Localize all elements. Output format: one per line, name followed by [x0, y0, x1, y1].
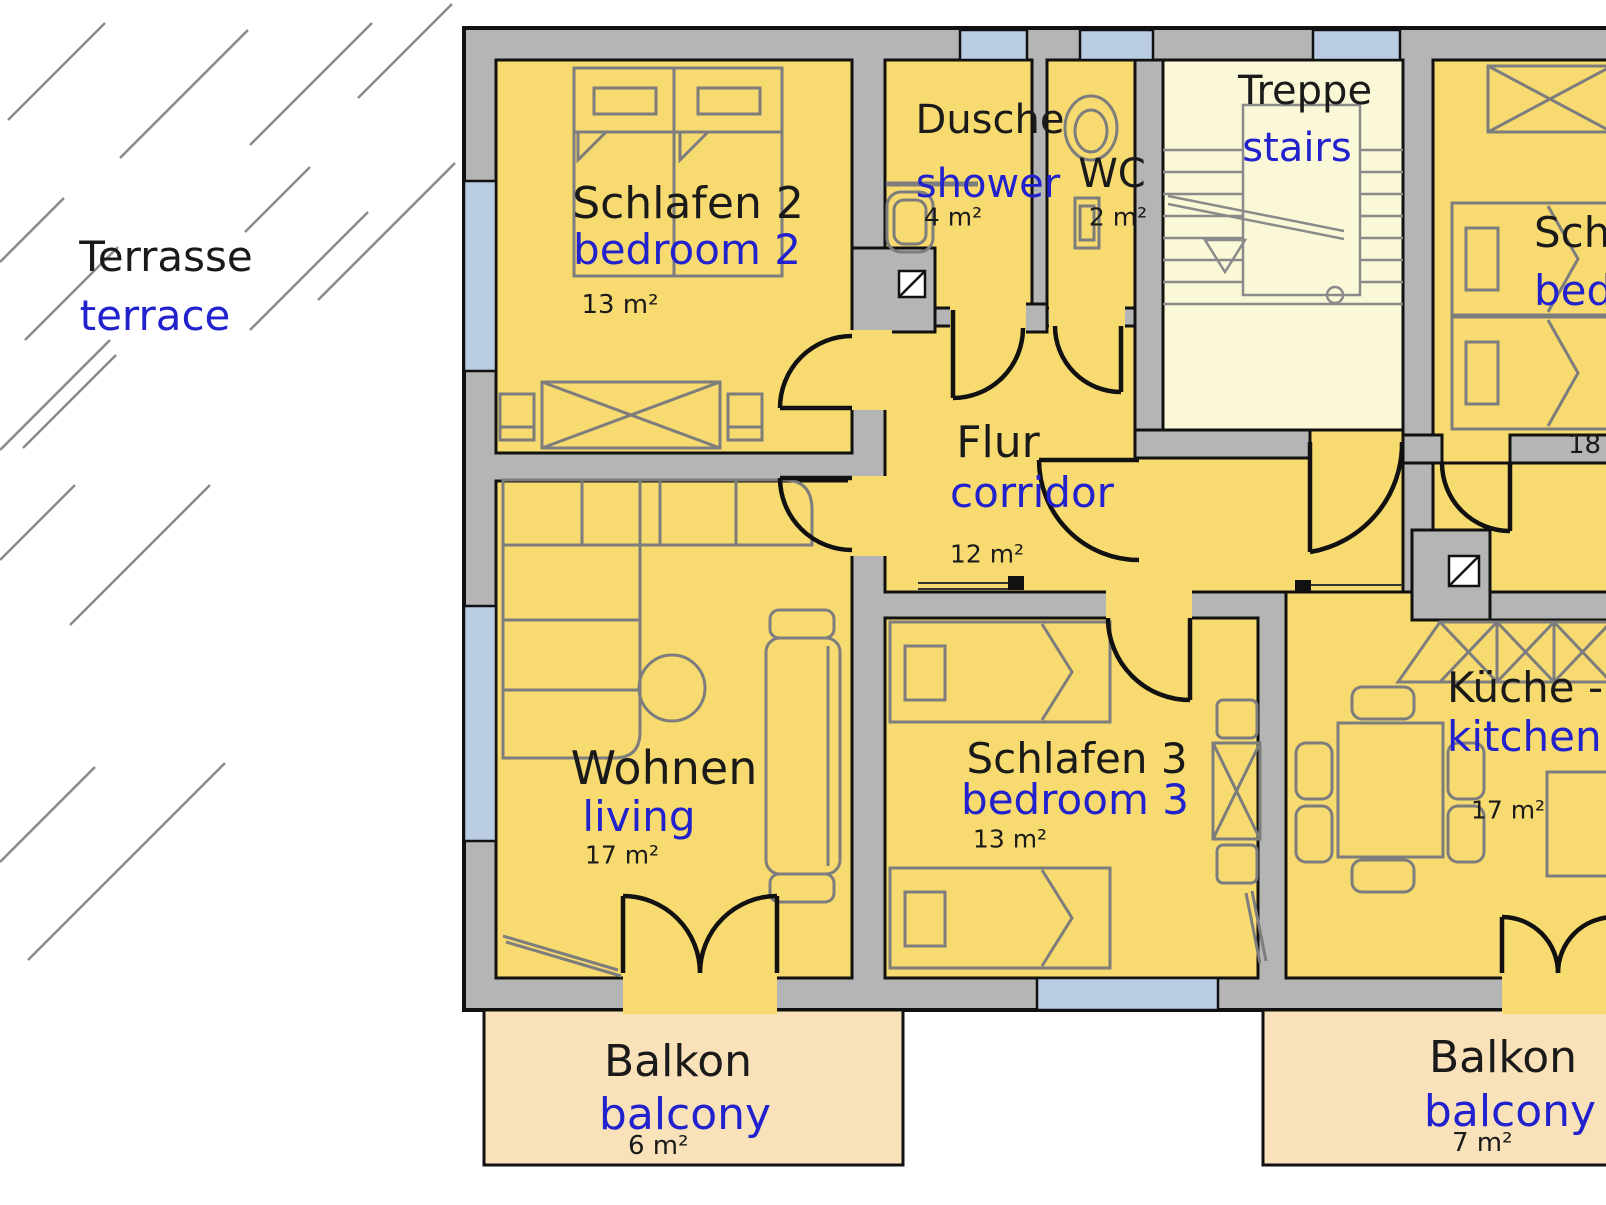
bedroom3-label-area: 13 m² — [973, 827, 1047, 852]
kitchen-label-area: 17 m² — [1471, 798, 1545, 823]
bedroom1-label-de: Schlafen 1 — [1534, 212, 1606, 254]
shower-label-en: shower — [916, 164, 1060, 204]
bedroom2-label-de: Schlafen 2 — [572, 182, 804, 226]
window-living — [464, 606, 496, 841]
window-stairs — [1313, 30, 1400, 60]
living-label-en: living — [582, 796, 695, 838]
shower-label-area: 4 m² — [924, 205, 982, 230]
balcony-door-recess-right — [1502, 976, 1606, 1014]
bedroom1-label-area: 18 m² — [1568, 432, 1606, 458]
opening-bedroom3 — [1106, 588, 1192, 622]
opening-living — [848, 476, 892, 556]
opening-wc — [1049, 296, 1125, 334]
opening-bedroom2 — [848, 330, 892, 410]
bedroom3-label-de: Schlafen 3 — [966, 738, 1187, 780]
window-wc — [1080, 30, 1153, 60]
bedroom2-label-area: 13 m² — [581, 292, 658, 318]
window-shower — [960, 30, 1027, 60]
shower-label-de: Dusche — [916, 100, 1065, 140]
wall-kitchen-top — [1490, 592, 1606, 620]
wall-wc-stairs — [1135, 60, 1163, 455]
room-bedroom1 — [1433, 60, 1606, 463]
wc-label-de: WC — [1078, 154, 1145, 194]
window-bedroom3 — [1037, 978, 1218, 1010]
balcony-right-label-area: 7 m² — [1452, 1130, 1513, 1156]
corridor-label-de: Flur — [956, 421, 1040, 465]
corridor-label-area: 12 m² — [950, 542, 1024, 567]
bedroom3-label-en: bedroom 3 — [961, 779, 1189, 821]
living-label-de: Wohnen — [571, 745, 758, 791]
kitchen-label-en: kitchen — [1447, 716, 1602, 758]
terrace-hatching-icon — [0, 4, 455, 960]
wall-stairs-bottom — [1135, 430, 1310, 458]
balcony-left-label-area: 6 m² — [628, 1133, 689, 1159]
bedroom1-label-en: bedroom 1 — [1534, 270, 1606, 312]
kitchen-label-de: Küche - — [1447, 667, 1603, 709]
room-kitchen — [1286, 592, 1606, 978]
stairs-label-en: stairs — [1242, 128, 1351, 168]
window-bedroom2 — [464, 181, 496, 371]
living-label-area: 17 m² — [585, 843, 659, 868]
corridor-label-en: corridor — [950, 472, 1114, 514]
balcony-left — [484, 1010, 903, 1165]
balcony-left-label-de: Balkon — [604, 1040, 752, 1084]
terrace-label-en: terrace — [80, 295, 231, 337]
balcony-door-recess-left — [623, 976, 777, 1014]
wc-label-area: 2 m² — [1089, 205, 1147, 230]
wall-bedroom1-bottom-left — [1403, 435, 1442, 463]
opening-shower — [950, 300, 1026, 336]
terrace-label-de: Terrasse — [79, 236, 253, 278]
floor-plan: Terrasse terrace Schlafen 2 bedroom 2 13… — [0, 0, 1606, 1205]
bedroom2-label-en: bedroom 2 — [573, 229, 801, 271]
stairs-label-de: Treppe — [1238, 71, 1372, 111]
balcony-right-label-de: Balkon — [1429, 1036, 1577, 1080]
